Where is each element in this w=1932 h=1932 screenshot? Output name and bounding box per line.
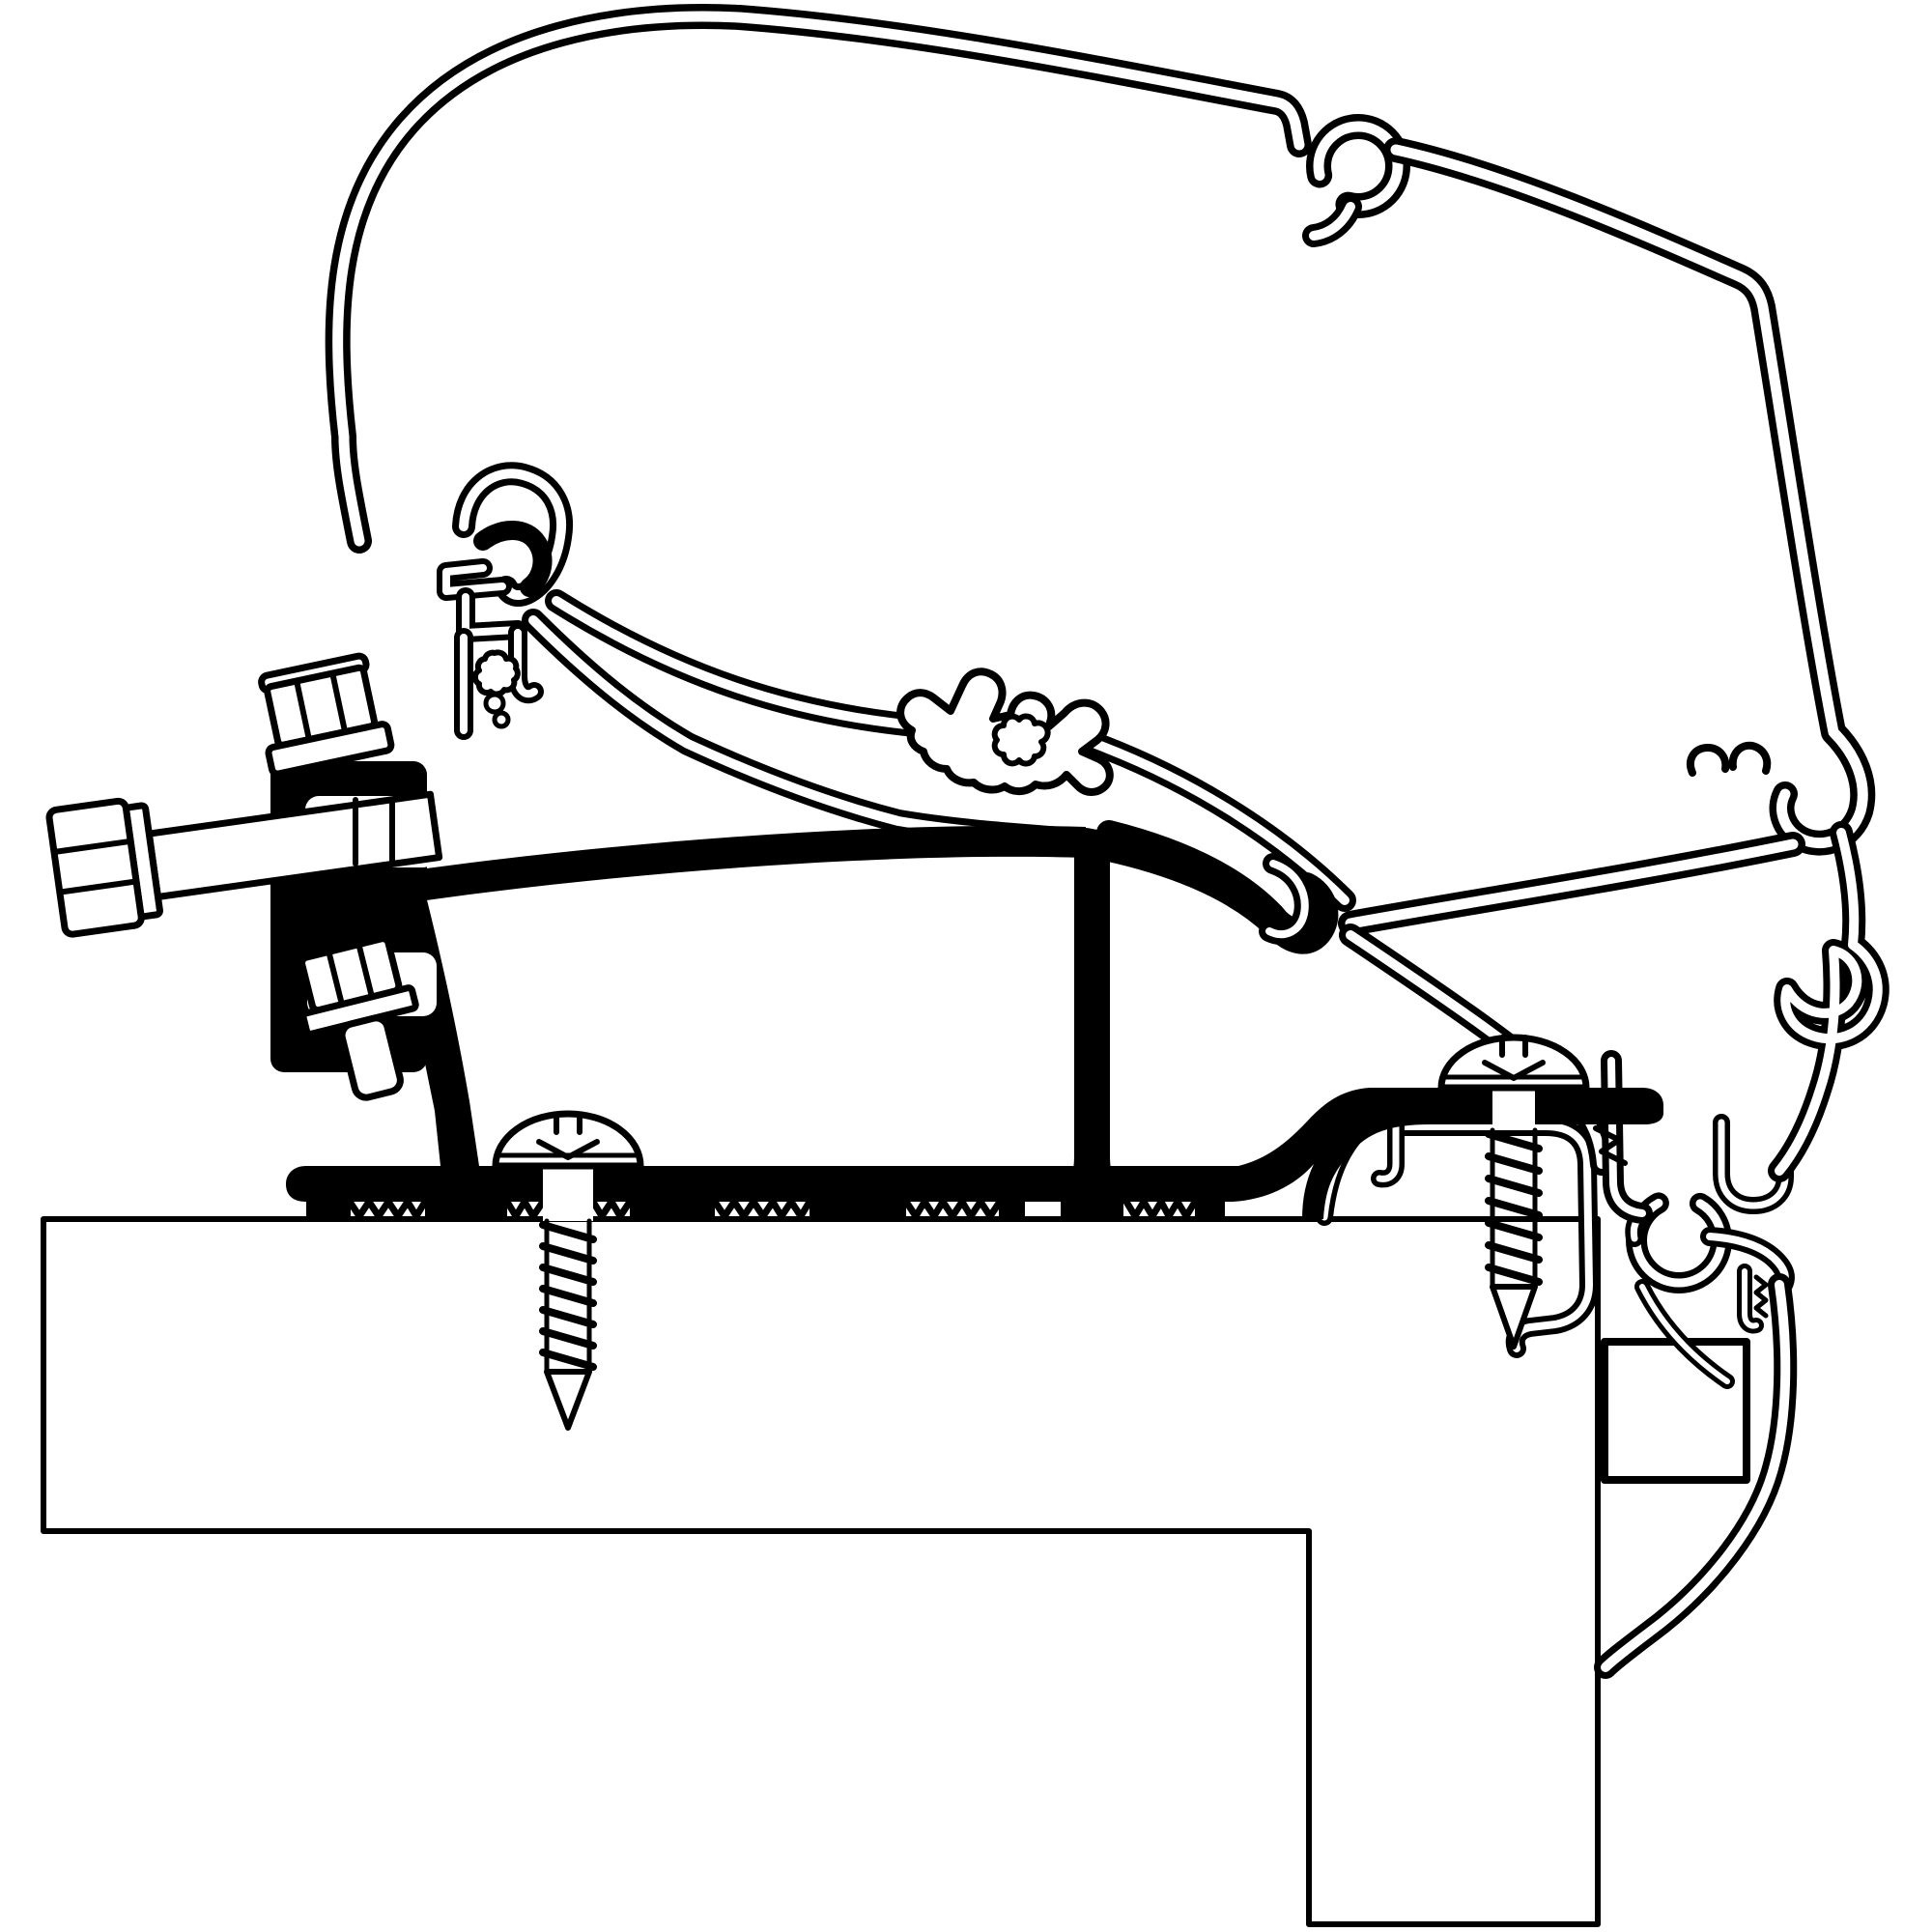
diagram-page [0, 0, 1932, 1932]
foot [1195, 1194, 1225, 1219]
screw-neck-gap [543, 1161, 593, 1221]
gasket-bead-tiny [495, 713, 508, 726]
crown-bead [995, 716, 1048, 763]
foot [999, 1194, 1025, 1219]
foot [630, 1194, 715, 1219]
bolt-hex-head [48, 800, 142, 935]
awning-adapter-cross-section-diagram [0, 0, 1932, 1932]
gasket-bead-small [486, 695, 503, 712]
gasket-bead-blob [475, 652, 518, 694]
spacer-pad [1605, 1342, 1747, 1480]
foot [425, 1194, 507, 1219]
foot [810, 1194, 906, 1219]
foot [306, 1194, 351, 1219]
